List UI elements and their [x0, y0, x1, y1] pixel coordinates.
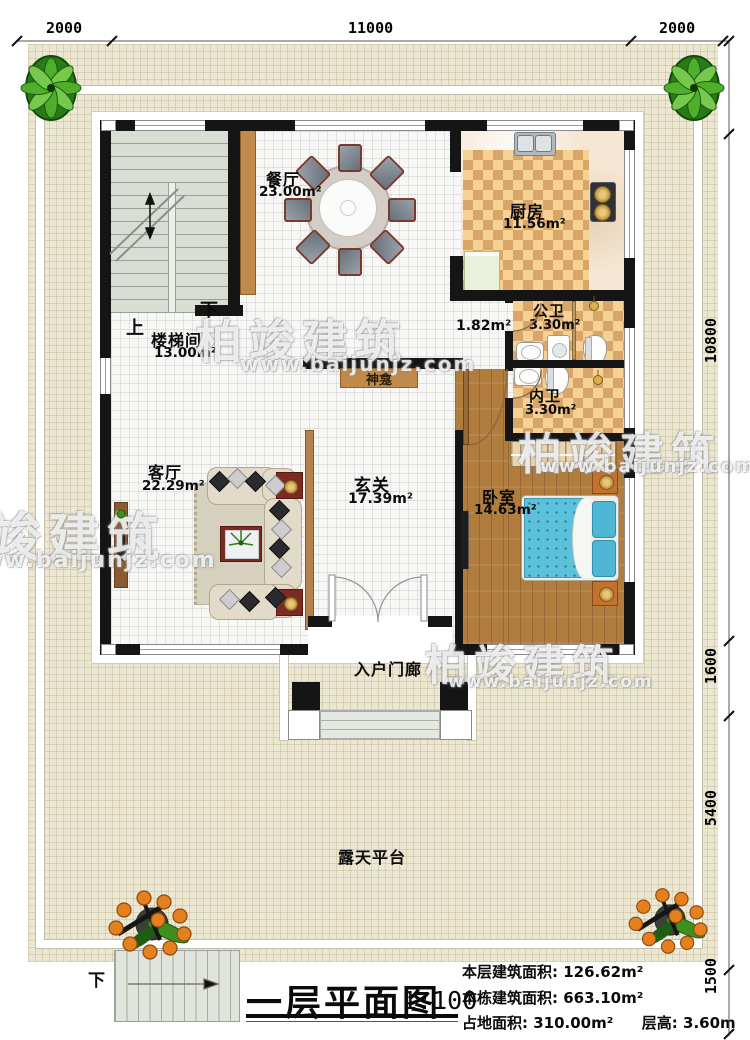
foyer-area: 17.39m² [348, 491, 413, 507]
wall-bath-west-2 [505, 331, 513, 371]
entry-lintel-right [428, 616, 452, 627]
dim-top-mid: 11000 [348, 19, 393, 37]
title-underline-thin [246, 1021, 458, 1022]
dim-right-1: 2000 [702, 66, 720, 102]
stat-building-area-label: 本栋建筑面积: [462, 989, 558, 1007]
dim-right-3: 1600 [702, 648, 720, 684]
wall-kitchen-west-bottom [450, 256, 463, 290]
watermark-url: www.baijunjz.com [0, 548, 217, 573]
porch-step-block-left [288, 710, 320, 740]
window-bedroom-right [624, 478, 635, 582]
bed-pillow [592, 501, 616, 538]
window-living-bottom [140, 644, 280, 655]
watermark-url: www.baijunjz.com [240, 352, 476, 376]
stat-floor-area: 本层建筑面积: 126.62m² [462, 961, 643, 982]
dining-chair [284, 198, 312, 222]
stat-building-area: 本栋建筑面积: 663.10m² [462, 987, 643, 1008]
foyer-divider [305, 430, 314, 630]
porch-steps [320, 710, 440, 740]
stair-stringer [168, 182, 176, 313]
dim-top-left: 2000 [46, 19, 82, 37]
bed-pillow [592, 540, 616, 577]
private-bath-area: 3.30m² [525, 403, 576, 418]
wall-stair-east [228, 120, 240, 316]
watermark-url: www.baijunjz.com [448, 672, 654, 692]
stat-height-value: 3.60m [683, 1014, 736, 1032]
window-stairwell-top [135, 120, 205, 131]
dining-chair [338, 144, 362, 172]
porch-step-block-right [440, 710, 472, 740]
terrace-label: 露天平台 [338, 844, 406, 868]
stat-land-area-value: 310.00m² [533, 1014, 613, 1032]
bedroom-tv [461, 511, 469, 569]
dim-right-2: 10800 [702, 318, 720, 363]
nightstand-lamp [599, 587, 614, 602]
side-table-lamp [284, 597, 298, 611]
wall-bath-west-1 [505, 290, 513, 303]
public-bath-area: 3.30m² [529, 318, 580, 333]
floorplan-canvas: 神龛 餐厅 23.00m² 厨房 11.56m² 楼梯间 13.00m² 上 下… [0, 0, 750, 1040]
title-underline [246, 1014, 458, 1018]
stat-land-area: 占地面积: 310.00m² 层高: 3.60m [462, 1012, 736, 1033]
porch-label: 入户门廊 [354, 656, 422, 680]
kitchen-sink-basin [535, 135, 552, 152]
bedroom-area: 14.63m² [474, 502, 537, 518]
dim-right-4: 5400 [702, 790, 720, 826]
window-bath-right [624, 328, 635, 428]
corner-post [101, 120, 116, 131]
stair-up-label: 上 [126, 314, 145, 340]
window-kitchen-top [487, 120, 583, 131]
porch-side-strip-left [280, 655, 288, 740]
porch-column-left [292, 682, 320, 710]
window-dining-top [295, 120, 425, 131]
dining-area: 23.00m² [259, 184, 322, 200]
stove-burner [594, 186, 611, 203]
corner-post [619, 120, 634, 131]
dim-top-right: 2000 [659, 19, 695, 37]
corner-post [619, 644, 634, 655]
window-stairwell-left [100, 358, 111, 394]
stove-burner [594, 204, 611, 221]
outdoor-stair-down-label: 下 [88, 966, 106, 991]
dining-table-center [340, 200, 356, 216]
fridge [464, 251, 500, 291]
private-bath-sink-bowl [519, 369, 539, 384]
side-table-lamp [284, 480, 298, 494]
dining-chair [338, 248, 362, 276]
window-kitchen-right [624, 150, 635, 258]
stat-floor-area-label: 本层建筑面积: [462, 963, 558, 981]
public-bath-sink-bowl [521, 345, 541, 360]
dining-chair [388, 198, 416, 222]
wall-kitchen-west-top [450, 120, 461, 172]
stat-land-area-label: 占地面积: [462, 1014, 528, 1032]
bedroom-door-leaf [463, 369, 469, 445]
wall-bath-divider [513, 360, 624, 368]
bed-sheet [572, 498, 591, 578]
outdoor-stairs [114, 950, 240, 1022]
corner-post [101, 644, 116, 655]
watermark-url: www.baijunjz.com [540, 456, 750, 477]
coffee-table-cloth [225, 530, 259, 559]
kitchen-area: 11.56m² [503, 216, 566, 232]
living-area: 22.29m² [142, 478, 205, 494]
hallway-area: 1.82m² [456, 318, 511, 334]
stat-building-area-value: 663.10m² [563, 989, 643, 1007]
kitchen-sink-basin [517, 135, 534, 152]
stat-height-label: 层高: [642, 1014, 678, 1032]
washing-machine-drum [552, 343, 567, 358]
dim-right-5: 1500 [702, 958, 720, 994]
dining-cabinet [240, 129, 256, 295]
stat-floor-area-value: 126.62m² [563, 963, 643, 981]
entry-lintel-left [308, 616, 332, 627]
